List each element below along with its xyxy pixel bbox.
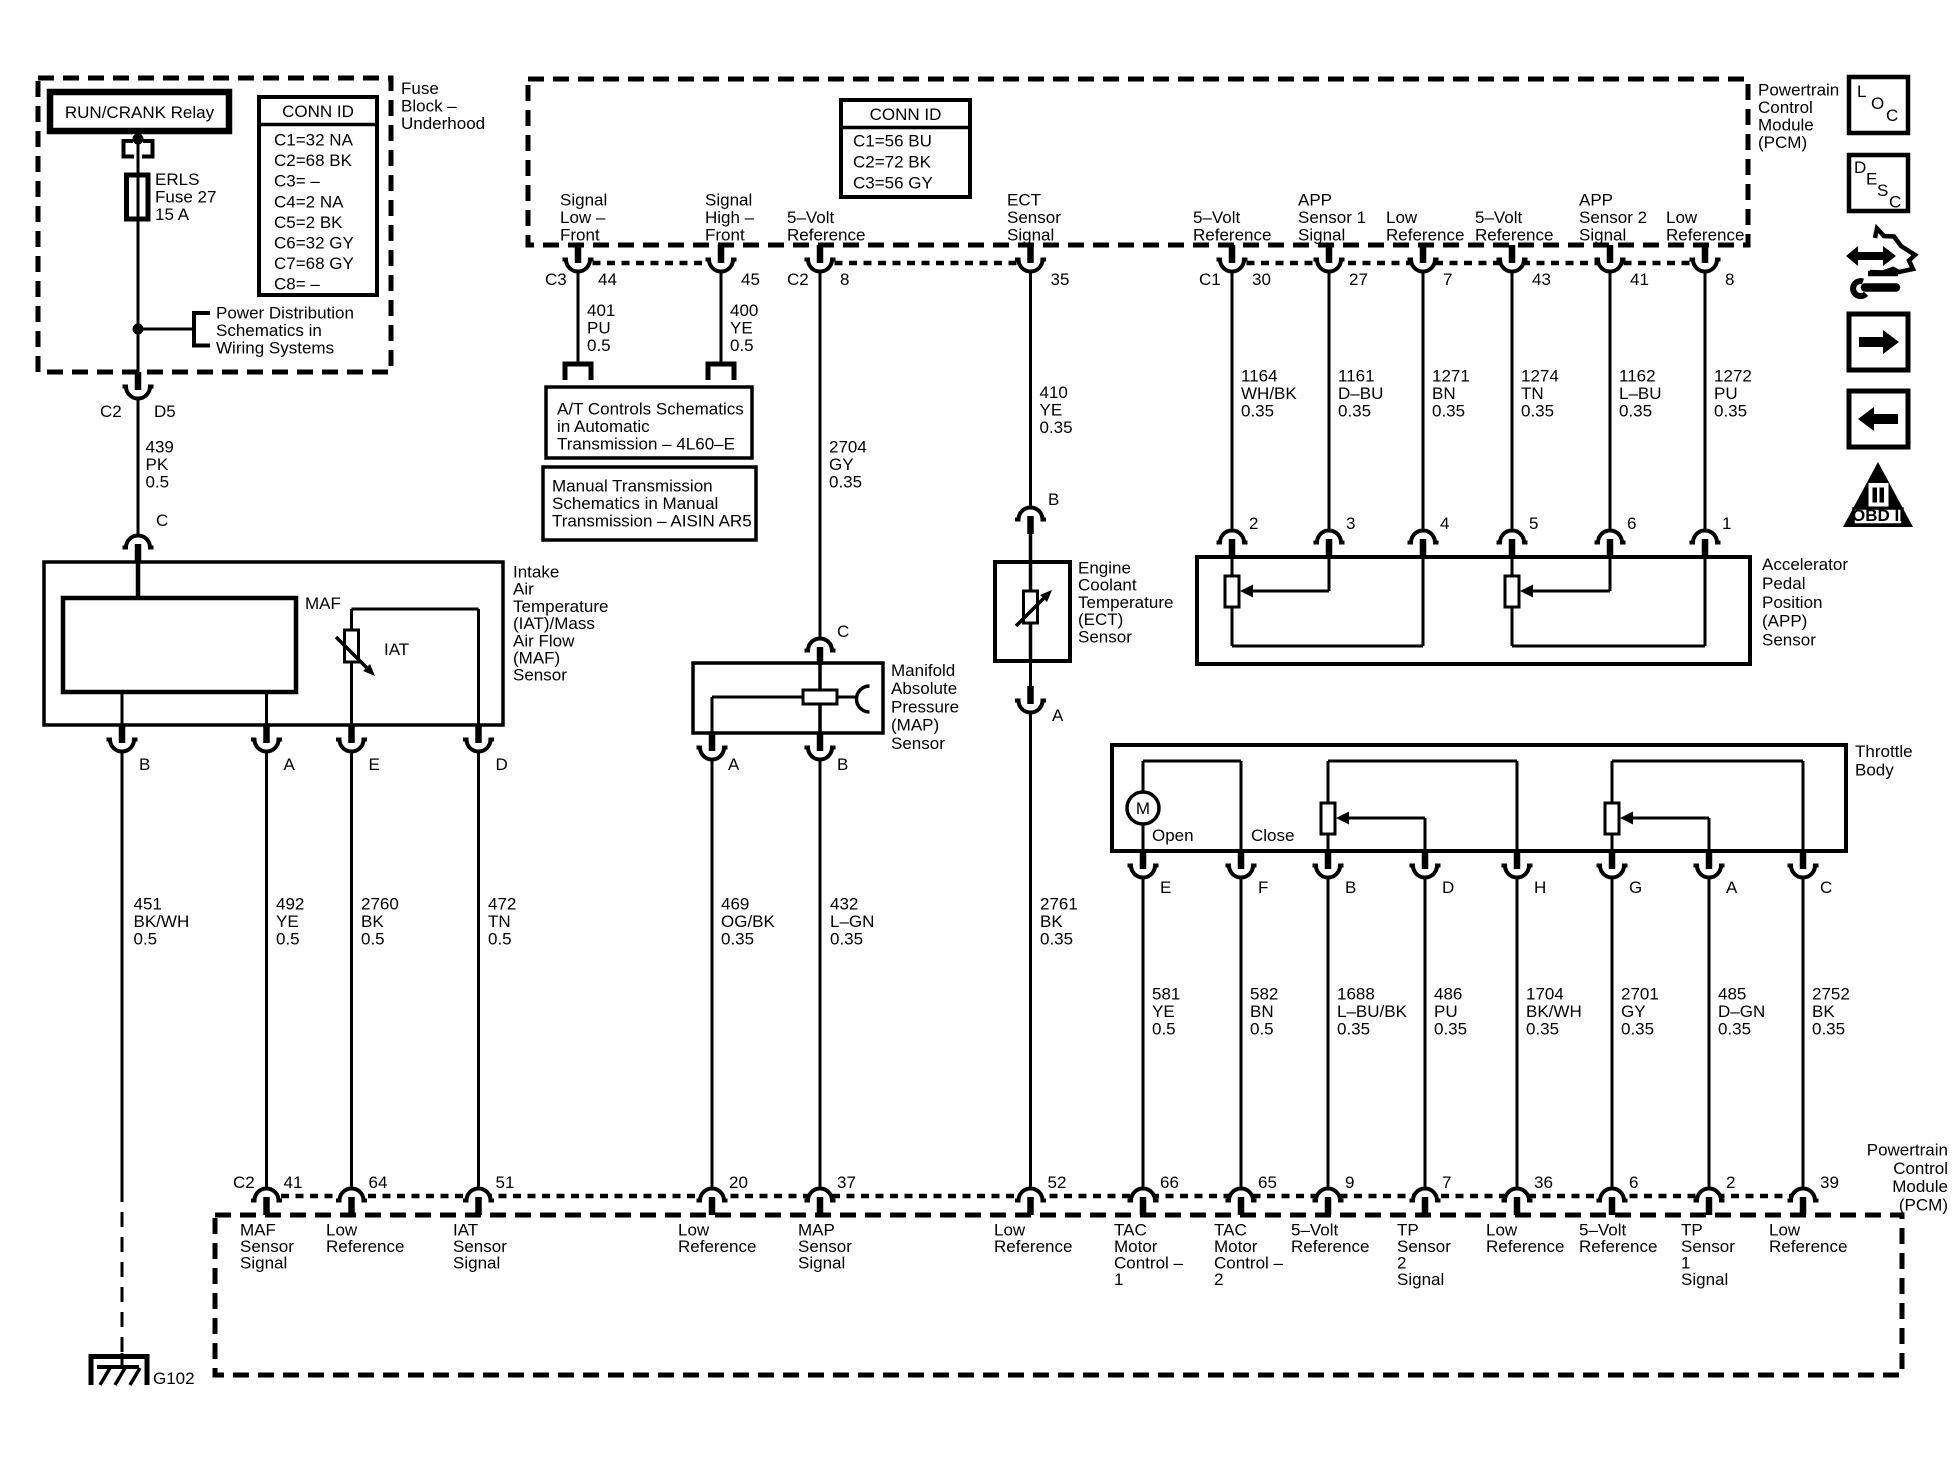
svg-text:F: F — [1258, 878, 1268, 897]
svg-text:C2=72 BK: C2=72 BK — [853, 153, 932, 172]
svg-text:C1: C1 — [1199, 270, 1221, 289]
svg-text:O: O — [1871, 94, 1884, 113]
svg-text:IAT: IAT — [384, 640, 409, 659]
svg-text:Reference: Reference — [1579, 1237, 1657, 1256]
svg-text:2760: 2760 — [361, 895, 399, 914]
svg-text:0.35: 0.35 — [1040, 418, 1073, 437]
svg-text:Reference: Reference — [1666, 226, 1744, 245]
svg-text:C6=32 GY: C6=32 GY — [274, 234, 354, 253]
svg-text:YE: YE — [730, 319, 753, 338]
svg-text:(PCM): (PCM) — [1758, 133, 1807, 152]
svg-text:27: 27 — [1349, 270, 1368, 289]
svg-text:APP: APP — [1298, 191, 1332, 210]
svg-text:1274: 1274 — [1521, 367, 1559, 386]
svg-text:432: 432 — [830, 895, 858, 914]
svg-text:OBD II: OBD II — [1852, 506, 1904, 525]
svg-text:3: 3 — [1346, 514, 1355, 533]
svg-text:Front: Front — [560, 226, 600, 245]
svg-text:5–Volt: 5–Volt — [787, 208, 835, 227]
svg-text:H: H — [1534, 878, 1546, 897]
svg-text:Sensor: Sensor — [1078, 627, 1132, 646]
svg-text:Body: Body — [1855, 760, 1894, 779]
svg-text:BK: BK — [1812, 1002, 1835, 1021]
svg-text:Low: Low — [1386, 208, 1418, 227]
svg-text:Front: Front — [705, 226, 745, 245]
svg-text:Signal: Signal — [1579, 226, 1626, 245]
svg-text:L–GN: L–GN — [830, 912, 874, 931]
svg-text:1162: 1162 — [1619, 367, 1656, 386]
svg-text:L–BU: L–BU — [1619, 384, 1662, 403]
svg-text:Air: Air — [513, 580, 534, 599]
svg-text:Reference: Reference — [678, 1237, 756, 1256]
svg-text:8: 8 — [1725, 270, 1734, 289]
svg-text:451: 451 — [134, 895, 162, 914]
svg-text:Control: Control — [1758, 98, 1813, 117]
svg-text:439: 439 — [146, 438, 174, 457]
svg-text:Signal: Signal — [798, 1254, 845, 1273]
svg-text:44: 44 — [598, 270, 617, 289]
svg-text:6: 6 — [1627, 514, 1636, 533]
svg-text:35: 35 — [1051, 270, 1070, 289]
svg-text:C2: C2 — [787, 270, 809, 289]
svg-text:30: 30 — [1252, 270, 1271, 289]
svg-text:Reference: Reference — [1486, 1237, 1564, 1256]
svg-text:Sensor 2: Sensor 2 — [1579, 208, 1647, 227]
svg-text:Temperature: Temperature — [1078, 593, 1173, 612]
svg-text:C1=56 BU: C1=56 BU — [853, 132, 932, 151]
svg-text:Intake: Intake — [513, 563, 559, 582]
svg-text:C: C — [1889, 193, 1901, 212]
svg-text:0.35: 0.35 — [1718, 1020, 1751, 1039]
svg-text:472: 472 — [488, 895, 516, 914]
svg-text:Throttle: Throttle — [1855, 742, 1913, 761]
svg-text:582: 582 — [1250, 985, 1278, 1004]
svg-text:0.5: 0.5 — [587, 336, 611, 355]
svg-text:Powertrain: Powertrain — [1867, 1141, 1948, 1160]
svg-text:Reference: Reference — [1386, 226, 1464, 245]
svg-text:E: E — [1866, 170, 1877, 189]
svg-text:Transmission – 4L60–E: Transmission – 4L60–E — [557, 435, 735, 454]
svg-text:Signal: Signal — [560, 191, 607, 210]
svg-text:Reference: Reference — [1475, 226, 1553, 245]
svg-text:(ECT): (ECT) — [1078, 610, 1123, 629]
svg-text:43: 43 — [1532, 270, 1551, 289]
svg-text:Pressure: Pressure — [891, 697, 959, 716]
svg-text:Low –: Low – — [560, 208, 606, 227]
svg-text:64: 64 — [369, 1173, 388, 1192]
svg-text:GY: GY — [829, 455, 854, 474]
svg-text:52: 52 — [1048, 1173, 1067, 1192]
svg-text:0.35: 0.35 — [830, 930, 863, 949]
svg-text:WH/BK: WH/BK — [1241, 384, 1297, 403]
svg-text:5–Volt: 5–Volt — [1475, 208, 1523, 227]
svg-text:2: 2 — [1249, 514, 1258, 533]
svg-text:469: 469 — [721, 895, 749, 914]
svg-text:486: 486 — [1434, 985, 1462, 1004]
svg-text:Sensor: Sensor — [891, 734, 945, 753]
svg-text:0.35: 0.35 — [1241, 402, 1274, 421]
svg-text:C: C — [156, 511, 168, 530]
svg-text:Signal: Signal — [453, 1254, 500, 1273]
svg-text:7: 7 — [1443, 270, 1452, 289]
svg-text:Manifold: Manifold — [891, 661, 955, 680]
svg-text:CONN ID: CONN ID — [870, 105, 942, 124]
svg-text:D–BU: D–BU — [1338, 384, 1383, 403]
svg-text:0.5: 0.5 — [146, 473, 170, 492]
svg-text:5–Volt: 5–Volt — [1193, 208, 1241, 227]
svg-text:GY: GY — [1621, 1002, 1646, 1021]
svg-text:0.5: 0.5 — [730, 336, 754, 355]
svg-text:Signal: Signal — [1298, 226, 1345, 245]
svg-text:D5: D5 — [154, 402, 176, 421]
svg-text:Low: Low — [1666, 208, 1698, 227]
svg-text:Sensor: Sensor — [1007, 208, 1061, 227]
svg-text:C: C — [837, 622, 849, 641]
svg-text:C3=56 GY: C3=56 GY — [853, 174, 933, 193]
svg-text:C2: C2 — [233, 1173, 255, 1192]
svg-text:Open: Open — [1152, 826, 1194, 845]
svg-text:D: D — [1854, 158, 1866, 177]
svg-text:0.35: 0.35 — [721, 930, 754, 949]
svg-text:OG/BK: OG/BK — [721, 912, 776, 931]
svg-text:20: 20 — [729, 1173, 748, 1192]
svg-text:485: 485 — [1718, 985, 1746, 1004]
svg-text:8: 8 — [840, 270, 849, 289]
svg-text:Reference: Reference — [326, 1237, 404, 1256]
svg-text:Underhood: Underhood — [401, 114, 485, 133]
svg-text:PU: PU — [587, 319, 611, 338]
svg-text:Wiring Systems: Wiring Systems — [216, 339, 334, 358]
svg-text:0.5: 0.5 — [276, 930, 300, 949]
svg-text:0.5: 0.5 — [361, 930, 385, 949]
svg-text:Fuse: Fuse — [401, 79, 439, 98]
svg-text:45: 45 — [741, 270, 760, 289]
svg-text:2761: 2761 — [1040, 895, 1078, 914]
svg-text:1271: 1271 — [1432, 367, 1470, 386]
svg-text:B: B — [139, 755, 150, 774]
svg-text:0.35: 0.35 — [1432, 402, 1465, 421]
svg-text:41: 41 — [1630, 270, 1649, 289]
svg-text:G102: G102 — [153, 1369, 195, 1388]
svg-text:0.35: 0.35 — [1619, 402, 1652, 421]
svg-text:L: L — [1857, 82, 1866, 101]
svg-text:MAF: MAF — [305, 594, 341, 613]
svg-text:Power Distribution: Power Distribution — [216, 304, 354, 323]
svg-text:B: B — [1048, 490, 1059, 509]
svg-text:0.35: 0.35 — [1434, 1020, 1467, 1039]
svg-text:BN: BN — [1250, 1002, 1274, 1021]
svg-text:CONN ID: CONN ID — [282, 102, 354, 121]
svg-text:Temperature: Temperature — [513, 597, 608, 616]
svg-text:G: G — [1629, 878, 1642, 897]
svg-text:Control –: Control – — [1114, 1254, 1184, 1273]
svg-text:37: 37 — [837, 1173, 856, 1192]
svg-text:Signal: Signal — [1007, 226, 1054, 245]
svg-text:0.5: 0.5 — [134, 930, 158, 949]
svg-text:1: 1 — [1114, 1270, 1123, 1289]
svg-text:0.35: 0.35 — [1338, 402, 1371, 421]
svg-text:C3= –: C3= – — [274, 172, 320, 191]
svg-text:0.35: 0.35 — [1526, 1020, 1559, 1039]
svg-text:Block –: Block – — [401, 97, 457, 116]
svg-text:YE: YE — [1040, 401, 1063, 420]
svg-text:9: 9 — [1345, 1173, 1354, 1192]
svg-text:15 A: 15 A — [155, 205, 190, 224]
svg-text:Absolute: Absolute — [891, 679, 957, 698]
svg-text:PU: PU — [1434, 1002, 1458, 1021]
svg-text:C1=32 NA: C1=32 NA — [274, 131, 354, 150]
svg-text:2: 2 — [1726, 1173, 1735, 1192]
svg-text:BK: BK — [1040, 912, 1063, 931]
svg-text:Manual Transmission: Manual Transmission — [552, 477, 713, 496]
svg-text:(IAT)/Mass: (IAT)/Mass — [513, 614, 595, 633]
svg-text:Sensor: Sensor — [513, 666, 567, 685]
svg-text:Pedal: Pedal — [1762, 574, 1805, 593]
svg-text:BK/WH: BK/WH — [134, 912, 190, 931]
svg-text:410: 410 — [1040, 383, 1068, 402]
svg-text:C4=2 NA: C4=2 NA — [274, 192, 344, 211]
svg-text:(MAP): (MAP) — [891, 716, 939, 735]
svg-text:D–GN: D–GN — [1718, 1002, 1765, 1021]
svg-text:Schematics in Manual: Schematics in Manual — [552, 494, 718, 513]
svg-text:Reference: Reference — [1193, 226, 1271, 245]
svg-text:1272: 1272 — [1714, 367, 1752, 386]
svg-text:0.35: 0.35 — [1040, 930, 1073, 949]
svg-text:36: 36 — [1534, 1173, 1553, 1192]
svg-text:7: 7 — [1442, 1173, 1451, 1192]
svg-text:BK: BK — [361, 912, 384, 931]
svg-text:6: 6 — [1629, 1173, 1638, 1192]
svg-text:Engine: Engine — [1078, 559, 1131, 578]
svg-text:D: D — [1442, 878, 1454, 897]
svg-text:Sensor 1: Sensor 1 — [1298, 208, 1366, 227]
svg-text:E: E — [1160, 878, 1171, 897]
svg-text:YE: YE — [1152, 1002, 1175, 1021]
svg-text:Position: Position — [1762, 593, 1822, 612]
svg-text:A: A — [1726, 878, 1738, 897]
svg-text:(MAF): (MAF) — [513, 649, 560, 668]
svg-text:Transmission – AISIN AR5: Transmission – AISIN AR5 — [552, 512, 752, 531]
svg-text:2704: 2704 — [829, 438, 867, 457]
svg-text:M: M — [1136, 799, 1150, 818]
svg-text:65: 65 — [1258, 1173, 1277, 1192]
svg-text:5: 5 — [1529, 514, 1538, 533]
svg-text:1164: 1164 — [1241, 367, 1278, 386]
svg-text:A/T Controls Schematics: A/T Controls Schematics — [557, 400, 744, 419]
svg-text:51: 51 — [496, 1173, 515, 1192]
svg-text:Signal: Signal — [705, 191, 752, 210]
svg-text:L–BU/BK: L–BU/BK — [1337, 1002, 1408, 1021]
svg-text:Reference: Reference — [787, 226, 865, 245]
svg-text:RUN/CRANK Relay: RUN/CRANK Relay — [65, 103, 215, 122]
svg-text:YE: YE — [276, 912, 299, 931]
svg-text:TN: TN — [1521, 384, 1544, 403]
svg-text:Sensor: Sensor — [1762, 631, 1816, 650]
svg-text:APP: APP — [1579, 191, 1613, 210]
svg-text:Module: Module — [1758, 116, 1814, 135]
svg-text:Coolant: Coolant — [1078, 576, 1137, 595]
svg-text:ECT: ECT — [1007, 191, 1041, 210]
svg-text:66: 66 — [1160, 1173, 1179, 1192]
svg-text:0.35: 0.35 — [1714, 402, 1747, 421]
svg-text:0.5: 0.5 — [488, 930, 512, 949]
svg-text:B: B — [837, 755, 848, 774]
svg-text:C: C — [1886, 106, 1898, 125]
svg-text:D: D — [496, 755, 508, 774]
svg-text:2752: 2752 — [1812, 985, 1850, 1004]
svg-text:C5=2 BK: C5=2 BK — [274, 213, 343, 232]
svg-text:0.5: 0.5 — [1250, 1020, 1274, 1039]
svg-text:PK: PK — [146, 455, 169, 474]
svg-text:C2: C2 — [100, 402, 122, 421]
svg-text:C: C — [1820, 878, 1832, 897]
svg-text:581: 581 — [1152, 985, 1180, 1004]
svg-text:1688: 1688 — [1337, 985, 1375, 1004]
svg-text:401: 401 — [587, 301, 615, 320]
svg-text:Air Flow: Air Flow — [513, 631, 575, 650]
svg-text:2: 2 — [1214, 1270, 1223, 1289]
svg-text:0.35: 0.35 — [1521, 402, 1554, 421]
svg-text:0.35: 0.35 — [829, 473, 862, 492]
svg-text:4: 4 — [1440, 514, 1449, 533]
svg-text:39: 39 — [1820, 1173, 1839, 1192]
svg-text:Signal: Signal — [1681, 1270, 1728, 1289]
svg-text:1704: 1704 — [1526, 985, 1564, 1004]
svg-text:2701: 2701 — [1621, 985, 1659, 1004]
svg-text:Fuse 27: Fuse 27 — [155, 188, 216, 207]
svg-text:PU: PU — [1714, 384, 1738, 403]
svg-text:BK/WH: BK/WH — [1526, 1002, 1582, 1021]
svg-text:41: 41 — [284, 1173, 303, 1192]
svg-text:E: E — [369, 755, 380, 774]
svg-text:C3: C3 — [545, 270, 567, 289]
svg-text:A: A — [284, 755, 296, 774]
svg-text:(PCM): (PCM) — [1899, 1195, 1948, 1214]
svg-text:Signal: Signal — [1397, 1270, 1444, 1289]
svg-text:1161: 1161 — [1338, 367, 1375, 386]
svg-text:Reference: Reference — [994, 1237, 1072, 1256]
svg-text:C8= –: C8= – — [274, 275, 320, 294]
svg-text:(APP): (APP) — [1762, 612, 1807, 631]
svg-text:ERLS: ERLS — [155, 170, 199, 189]
svg-text:0.35: 0.35 — [1621, 1020, 1654, 1039]
svg-text:in Automatic: in Automatic — [557, 417, 650, 436]
svg-text:B: B — [1345, 878, 1356, 897]
svg-text:Powertrain: Powertrain — [1758, 81, 1839, 100]
svg-text:Reference: Reference — [1769, 1237, 1847, 1256]
svg-text:A: A — [1052, 706, 1064, 725]
svg-text:Close: Close — [1251, 826, 1294, 845]
svg-text:A: A — [728, 755, 740, 774]
svg-text:C7=68 GY: C7=68 GY — [274, 254, 354, 273]
svg-text:BN: BN — [1432, 384, 1456, 403]
svg-text:Accelerator: Accelerator — [1762, 555, 1848, 574]
svg-text:TN: TN — [488, 912, 511, 931]
svg-text:400: 400 — [730, 301, 758, 320]
svg-text:0.35: 0.35 — [1812, 1020, 1845, 1039]
svg-text:Module: Module — [1892, 1177, 1948, 1196]
svg-text:Signal: Signal — [240, 1254, 287, 1273]
svg-text:S: S — [1877, 181, 1888, 200]
svg-text:Control –: Control – — [1214, 1254, 1284, 1273]
svg-text:0.35: 0.35 — [1337, 1020, 1370, 1039]
svg-text:C2=68 BK: C2=68 BK — [274, 151, 353, 170]
svg-text:High –: High – — [705, 208, 755, 227]
svg-text:Reference: Reference — [1291, 1237, 1369, 1256]
svg-text:Control: Control — [1893, 1159, 1948, 1178]
svg-text:1: 1 — [1722, 514, 1731, 533]
svg-text:0.5: 0.5 — [1152, 1020, 1176, 1039]
svg-text:Schematics in: Schematics in — [216, 321, 322, 340]
svg-text:492: 492 — [276, 895, 304, 914]
